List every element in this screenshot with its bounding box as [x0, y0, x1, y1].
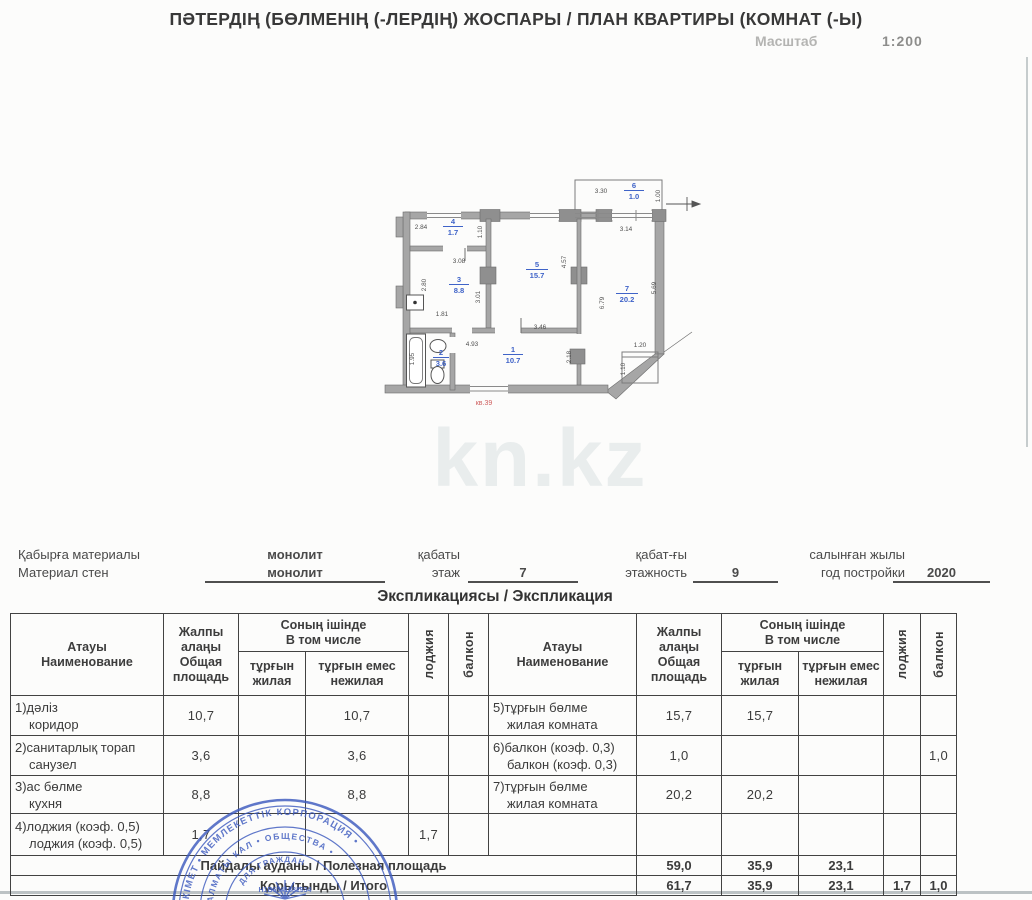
- dim-label: 2.84: [415, 224, 428, 231]
- wall-material-value-kk: монолит: [205, 546, 385, 563]
- dim-label: 1.10: [620, 362, 627, 375]
- cell-balcony: [921, 776, 957, 814]
- year-value: 2020: [893, 564, 990, 581]
- dim-label: 1.20: [634, 342, 647, 349]
- table-heading: Экспликациясы / Экспликация: [0, 588, 990, 606]
- cell-balcony: [921, 856, 957, 876]
- bathroom-fixtures: [407, 295, 447, 387]
- dim-label: 3.46: [534, 324, 547, 331]
- cell-balcony: [449, 776, 489, 814]
- header-loggia-left: лоджия: [409, 614, 449, 696]
- cell-total: 1,0: [637, 736, 722, 776]
- svg-text:ДЛЯ ГРАЖДАН: ДЛЯ ГРАЖДАН: [237, 855, 306, 886]
- room-number: 7: [625, 284, 629, 293]
- header-nonliving-left: тұрғын емеснежилая: [306, 652, 409, 696]
- cell-balcony: [921, 814, 957, 856]
- cell-total: 15,7: [637, 696, 722, 736]
- header-loggia-right: лоджия: [884, 614, 921, 696]
- table-header-row-1: АтауыНаименование Жалпы алаңыОбщая площа…: [11, 614, 957, 652]
- cell-name: 6)балкон (коэф. 0,3)балкон (коэф. 0,3): [489, 736, 637, 776]
- dim-label: 1.10: [477, 225, 484, 238]
- room-area: 3.6: [436, 359, 447, 368]
- stamp-ring3-text: ДЛЯ ГРАЖДАН: [237, 855, 306, 886]
- apartment-number-label: кв.39: [476, 400, 493, 407]
- header-including-left: Соның ішіндеВ том числе: [239, 614, 409, 652]
- cell-total: 61,7: [637, 876, 722, 896]
- dim-label: 3.08: [453, 258, 466, 265]
- dim-label: 3.01: [475, 290, 482, 303]
- cell-living: 35,9: [722, 856, 799, 876]
- document-page: ПӘТЕРДІҢ (БӨЛМЕНІҢ (-ЛЕРДІҢ) ЖОСПАРЫ / П…: [0, 0, 1032, 900]
- dim-label: 2.18: [566, 350, 573, 363]
- cell-loggia: [884, 776, 921, 814]
- wall-axis-arrow-icon: [666, 197, 700, 211]
- cell-name: 7)тұрғын бөлмежилая комната: [489, 776, 637, 814]
- header-including-right: Соның ішіндеВ том числе: [722, 614, 884, 652]
- wall-material-label-kk: Қабырға материалы: [18, 546, 140, 563]
- floor-label-kk: қабаты: [370, 546, 460, 563]
- year-label-ru: год постройки: [760, 564, 905, 581]
- cell-living: [722, 736, 799, 776]
- header-balcony-left: балкон: [449, 614, 489, 696]
- cell-balcony: [449, 696, 489, 736]
- header-nonliving-right: тұрғын емеснежилая: [799, 652, 884, 696]
- cell-living: [722, 814, 799, 856]
- header-living-right: тұрғынжилая: [722, 652, 799, 696]
- dim-label: 1.81: [436, 311, 449, 318]
- table-row: 1)дәлізкоридор 10,7 10,7 5)тұрғын бөлмеж…: [11, 696, 957, 736]
- cell-balcony: [449, 736, 489, 776]
- cell-loggia: [884, 814, 921, 856]
- room-label-1: 1 10.7: [503, 345, 523, 365]
- scan-edge-line: [1026, 57, 1028, 447]
- floor-label-ru: этаж: [370, 564, 460, 581]
- balcony-outline: [575, 180, 662, 212]
- room-area: 15.7: [530, 271, 545, 280]
- cell-name: 1)дәлізкоридор: [11, 696, 164, 736]
- cell-total: 20,2: [637, 776, 722, 814]
- header-living-left: тұрғынжилая: [239, 652, 306, 696]
- windows: [427, 210, 652, 394]
- cell-balcony: 1,0: [921, 876, 957, 896]
- header-total-right: Жалпы алаңыОбщая площадь: [637, 614, 722, 696]
- cell-loggia: [884, 736, 921, 776]
- room-area: 20.2: [620, 295, 635, 304]
- cell-balcony: 1,0: [921, 736, 957, 776]
- cell-name: 2)санитарлық торапсанузел: [11, 736, 164, 776]
- room-number: 2: [439, 348, 443, 357]
- cell-nonliving: [799, 814, 884, 856]
- cell-living: 15,7: [722, 696, 799, 736]
- dim-label: 2.80: [421, 278, 428, 291]
- room-number: 5: [535, 260, 540, 269]
- cell-living: 35,9: [722, 876, 799, 896]
- dim-label: 3.30: [595, 188, 608, 195]
- room-number: 6: [632, 181, 636, 190]
- wall-material-label-ru: Материал стен: [18, 564, 109, 581]
- cell-living: [239, 736, 306, 776]
- dim-label: 4.93: [466, 341, 479, 348]
- room-label-7: 7 20.2: [616, 284, 638, 304]
- room-area: 8.8: [454, 286, 465, 295]
- cell-living: 20,2: [722, 776, 799, 814]
- cell-name: 5)тұрғын бөлмежилая комната: [489, 696, 637, 736]
- room-area: 1.0: [629, 192, 640, 201]
- cell-balcony: [921, 696, 957, 736]
- header-name-left: АтауыНаименование: [11, 614, 164, 696]
- cell-nonliving: 23,1: [799, 856, 884, 876]
- room-area: 10.7: [506, 356, 521, 365]
- wall-material-value-ru: монолит: [205, 564, 385, 581]
- header-total-left: Жалпы алаңыОбщая площадь: [164, 614, 239, 696]
- dim-label: 6.79: [599, 296, 606, 309]
- cell-living: [239, 696, 306, 736]
- cell-loggia: [409, 736, 449, 776]
- cell-name: [489, 814, 637, 856]
- table-row: 2)санитарлық торапсанузел 3,6 3,6 6)балк…: [11, 736, 957, 776]
- room-number: 1: [511, 345, 516, 354]
- official-stamp: ҮКІМЕТ • МЕМЛЕКЕТТІК КОРПОРАЦИЯ • АЛМАТЫ…: [135, 776, 435, 900]
- dim-label: 1.00: [655, 189, 662, 202]
- cell-balcony: [449, 814, 489, 856]
- cell-nonliving: 23,1: [799, 876, 884, 896]
- cell-total: 3,6: [164, 736, 239, 776]
- room-labels: 1 10.7 2 3.6 3 8.8 4 1.7 5: [433, 181, 644, 368]
- cell-nonliving: 10,7: [306, 696, 409, 736]
- floors-label-kk: қабат-ғы: [600, 546, 687, 563]
- dim-label: 4.57: [561, 255, 568, 268]
- watermark: kn.kz: [360, 412, 720, 506]
- cell-nonliving: 3,6: [306, 736, 409, 776]
- cell-total: 59,0: [637, 856, 722, 876]
- year-label-kk: салынған жылы: [760, 546, 905, 563]
- floors-label-ru: этажность: [600, 564, 687, 581]
- floor-value: 7: [468, 564, 578, 581]
- room-label-5: 5 15.7: [526, 260, 548, 280]
- cell-nonliving: [799, 696, 884, 736]
- cell-loggia: [409, 696, 449, 736]
- header-name-right: АтауыНаименование: [489, 614, 637, 696]
- cell-loggia: 1,7: [884, 876, 921, 896]
- dim-label: 5.69: [651, 281, 658, 294]
- room-number: 3: [457, 275, 461, 284]
- cell-total: 10,7: [164, 696, 239, 736]
- dim-label: 1.95: [409, 352, 416, 365]
- cell-nonliving: [799, 776, 884, 814]
- cell-loggia: [884, 696, 921, 736]
- cell-nonliving: [799, 736, 884, 776]
- cell-total: [637, 814, 722, 856]
- dim-label: 3.14: [620, 226, 633, 233]
- room-label-3: 3 8.8: [449, 275, 469, 295]
- header-balcony-right: балкон: [921, 614, 957, 696]
- room-area: 1.7: [448, 228, 459, 237]
- room-label-6: 6 1.0: [624, 181, 644, 201]
- cell-loggia: [884, 856, 921, 876]
